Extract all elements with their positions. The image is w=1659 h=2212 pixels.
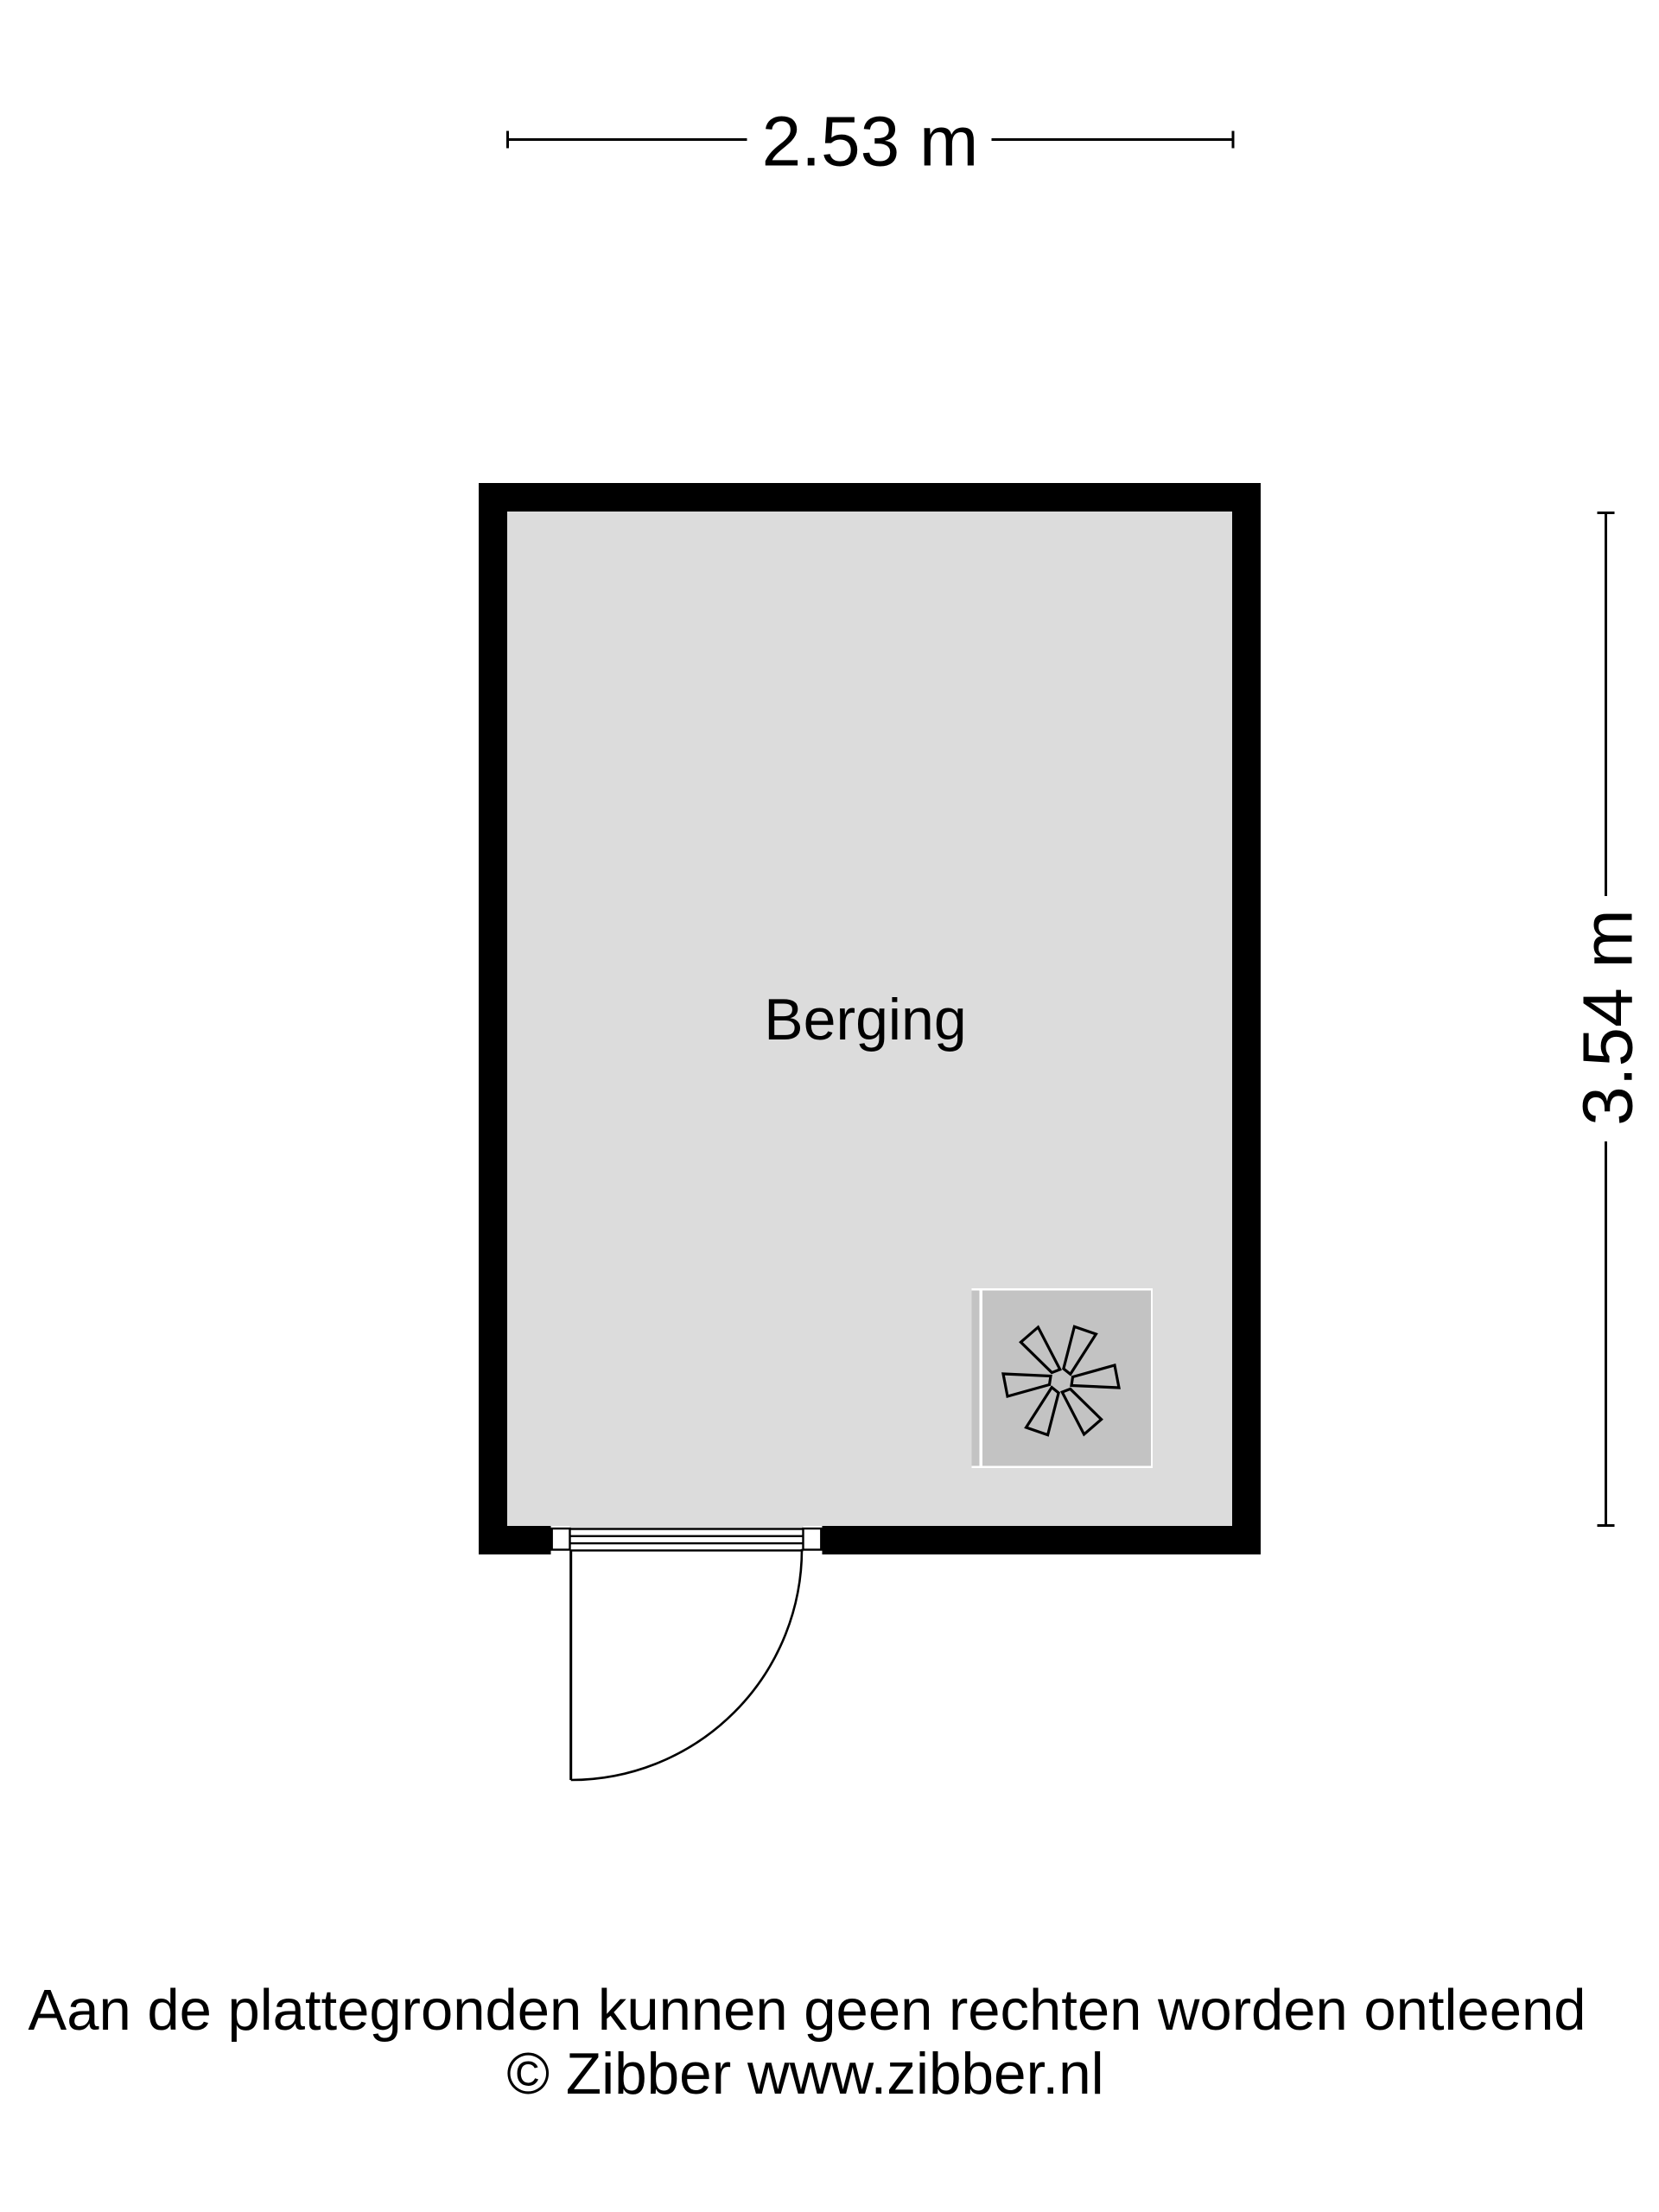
svg-text:2.53 m: 2.53 m	[762, 103, 979, 181]
svg-text:Aan de plattegronden kunnen ge: Aan de plattegronden kunnen geen rechten…	[29, 1978, 1586, 2043]
svg-text:Berging: Berging	[764, 987, 966, 1052]
svg-text:3.54 m: 3.54 m	[1569, 909, 1648, 1126]
svg-text:© Zibber www.zibber.nl: © Zibber www.zibber.nl	[506, 2042, 1103, 2107]
